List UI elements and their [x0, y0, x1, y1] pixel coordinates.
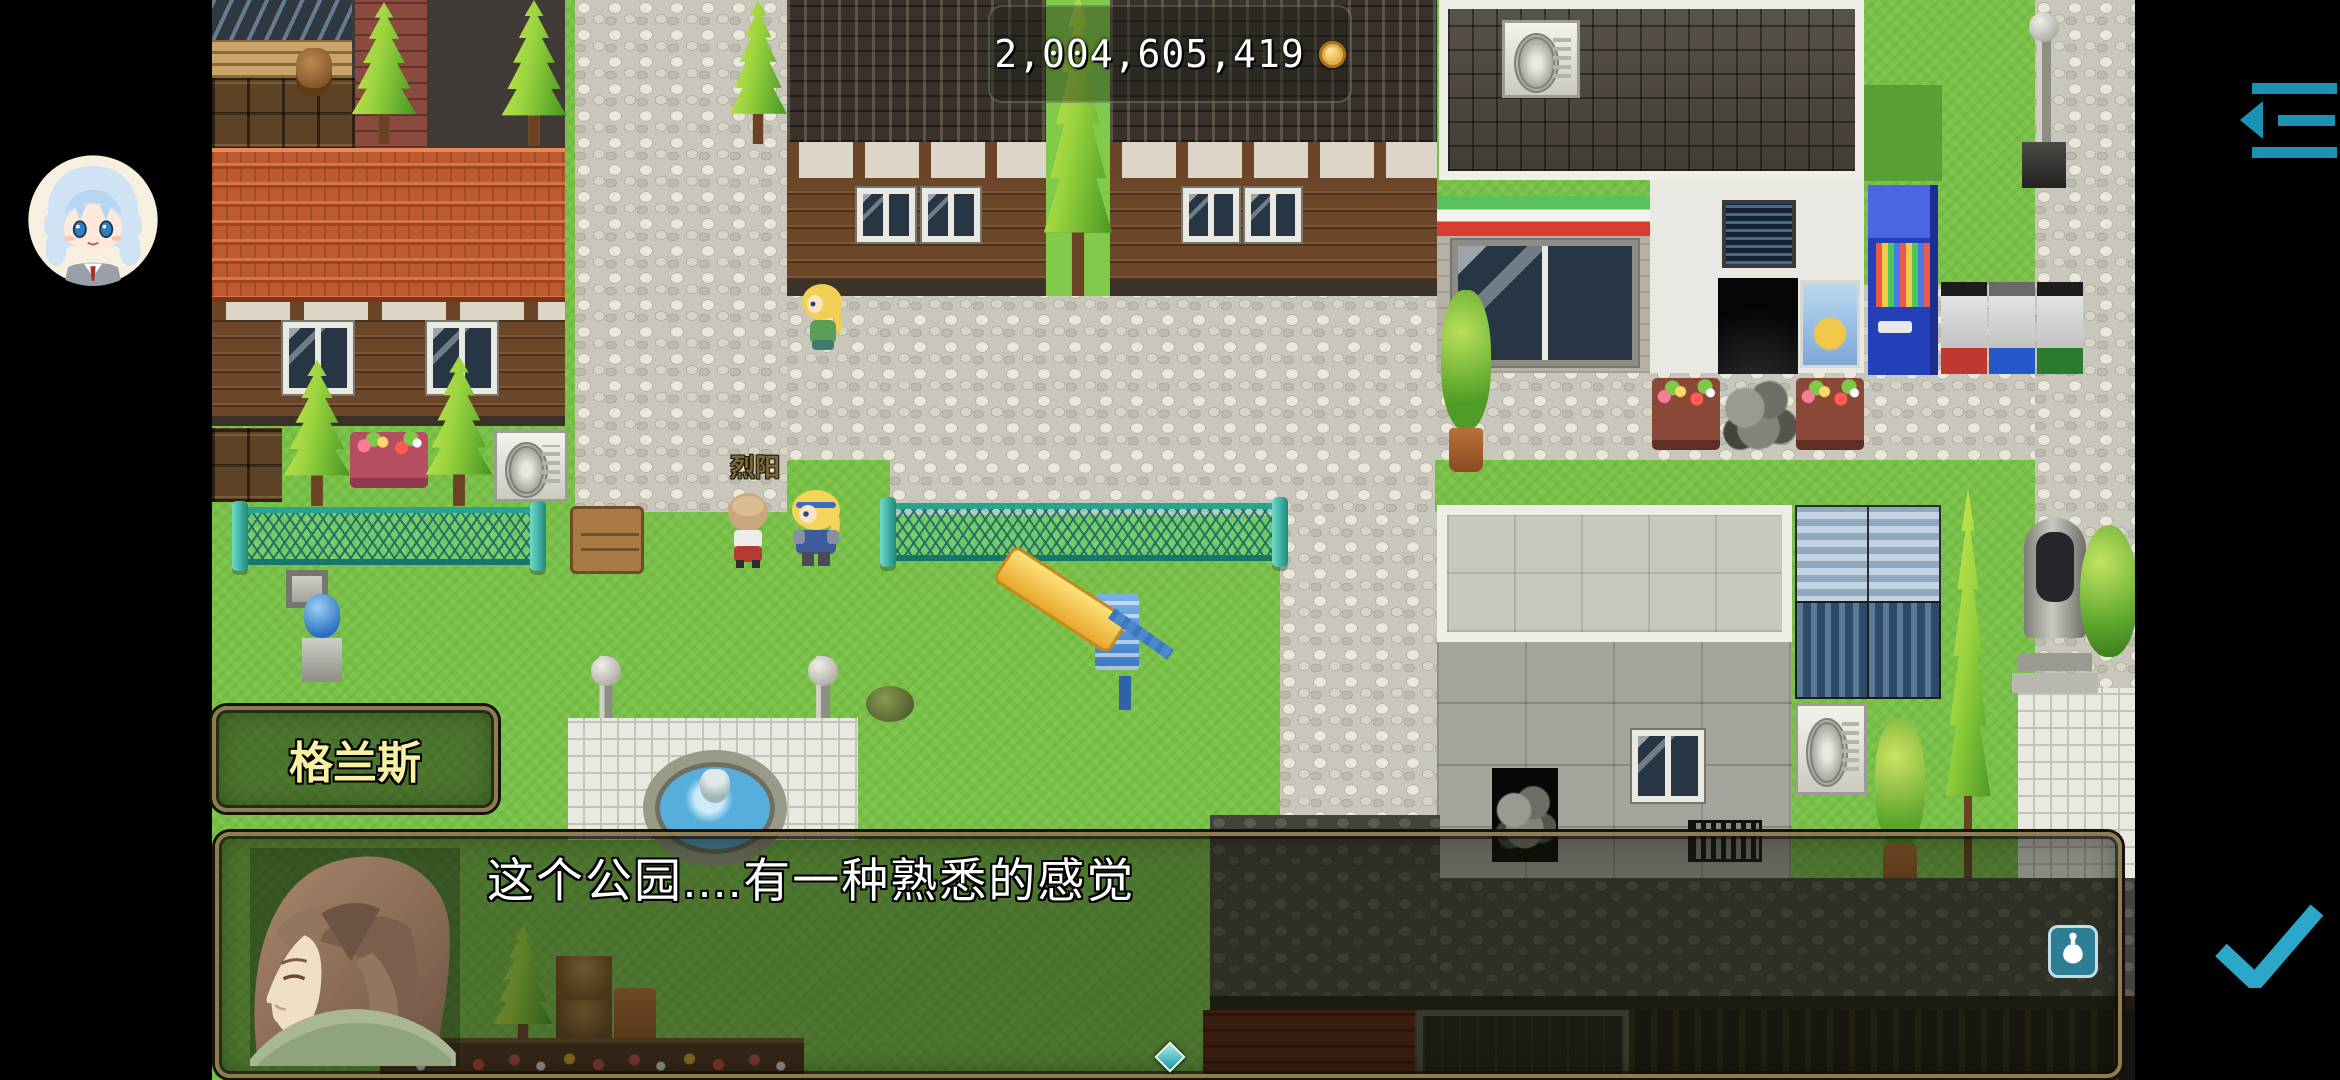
speaker-portrait [250, 848, 460, 1066]
currency-window: 2,004,605,419 [988, 5, 1352, 103]
hide-ui-arrow-icon [2240, 147, 2337, 164]
npc-lieyang[interactable] [726, 492, 770, 570]
speaker-name-box: 格兰斯 [212, 706, 498, 812]
window [1245, 188, 1301, 242]
potion-flask-icon [2056, 930, 2090, 973]
street-lamp [2022, 12, 2066, 188]
store-poster [1800, 280, 1860, 368]
window [857, 188, 915, 242]
npc-villager-green[interactable] [798, 282, 848, 354]
flower-bed [350, 432, 428, 488]
barrel [296, 48, 332, 96]
vending-slot [1878, 321, 1912, 333]
crate-stack [212, 428, 282, 502]
vending-machine [1868, 185, 1938, 375]
npc-knight[interactable] [788, 490, 844, 570]
modern-window [1632, 730, 1704, 802]
avatar-button[interactable] [27, 154, 159, 286]
dialogue-box[interactable]: 这个公园....有一种熟悉的感觉 [215, 832, 2122, 1078]
red-roof [212, 148, 565, 302]
bush [866, 686, 914, 722]
dialogue-text: 这个公园....有一种熟悉的感觉 [487, 852, 2087, 910]
wood-wall [787, 178, 1046, 280]
rooftop-ac [1502, 20, 1580, 98]
park-sign [570, 506, 644, 574]
flower-planter [1652, 378, 1720, 450]
continue-indicator [1154, 1041, 1185, 1072]
round-tree [2080, 525, 2135, 657]
park-fence [240, 507, 538, 565]
vending-display [1876, 243, 1930, 307]
ac-unit [1795, 703, 1867, 795]
speaker-name: 格兰斯 [289, 727, 421, 791]
player-avatar-icon [27, 273, 159, 286]
store-awning [1437, 196, 1650, 236]
confirm-check-icon [2213, 975, 2327, 992]
junk-pile [1722, 378, 1798, 456]
plinth [1110, 280, 1437, 296]
item-button[interactable] [2048, 925, 2098, 978]
playground-slide [985, 594, 1161, 714]
flower-planter [1796, 378, 1864, 450]
wall-beam [212, 302, 565, 320]
window [922, 188, 980, 242]
water-cooler [298, 594, 346, 682]
plaster-band [1110, 142, 1437, 178]
house-plinth [212, 416, 565, 426]
potted-plant [1437, 290, 1495, 472]
gold-coin-icon [1319, 41, 1346, 68]
plaster-band [787, 142, 1046, 178]
npc-name-label: 烈阳 [710, 448, 800, 484]
game-screen: 烈阳 [0, 0, 2340, 1080]
dark-grass-patch [1864, 85, 1942, 181]
currency-value: 2,004,605,419 [994, 32, 1304, 76]
shutter-doors [1795, 505, 1941, 695]
window [1183, 188, 1239, 242]
crate-stack [212, 78, 355, 150]
ac-unit [494, 430, 568, 502]
modern-roof [1437, 505, 1792, 642]
recycle-bins [1940, 282, 2084, 374]
park-fence [888, 503, 1280, 561]
house-wall [212, 302, 565, 424]
hide-ui-button[interactable] [2240, 81, 2337, 160]
store-doorway [1718, 278, 1798, 374]
store-screen [1722, 200, 1796, 268]
confirm-button[interactable] [2213, 902, 2327, 988]
tall-tree [1943, 488, 1993, 878]
glass-roof [212, 0, 352, 40]
